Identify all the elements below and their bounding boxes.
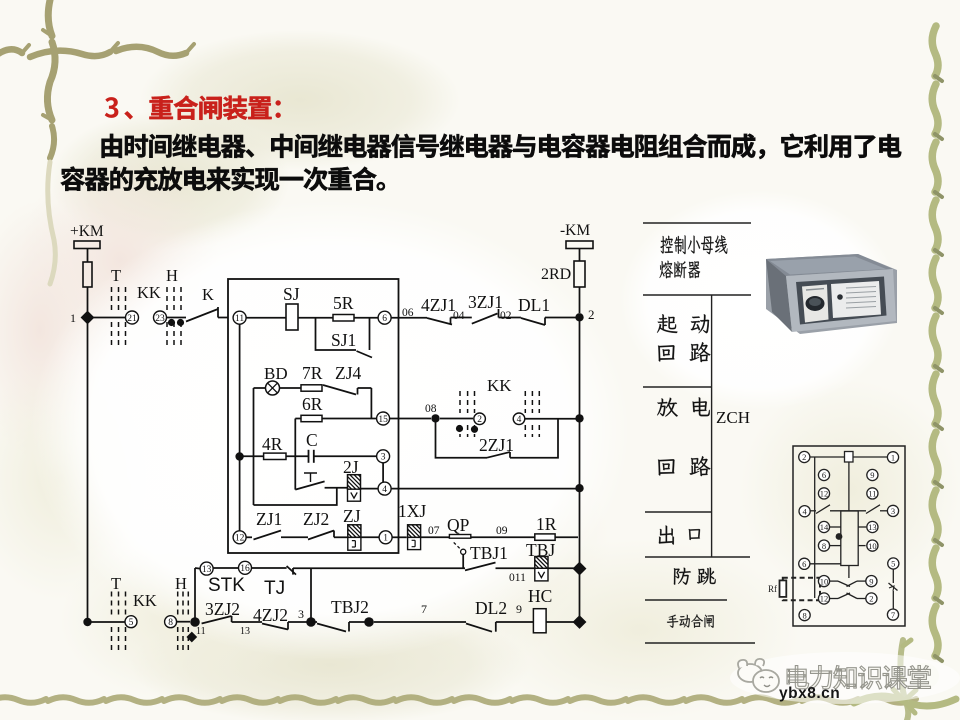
svg-text:ybx8.cn: ybx8.cn xyxy=(779,685,840,702)
